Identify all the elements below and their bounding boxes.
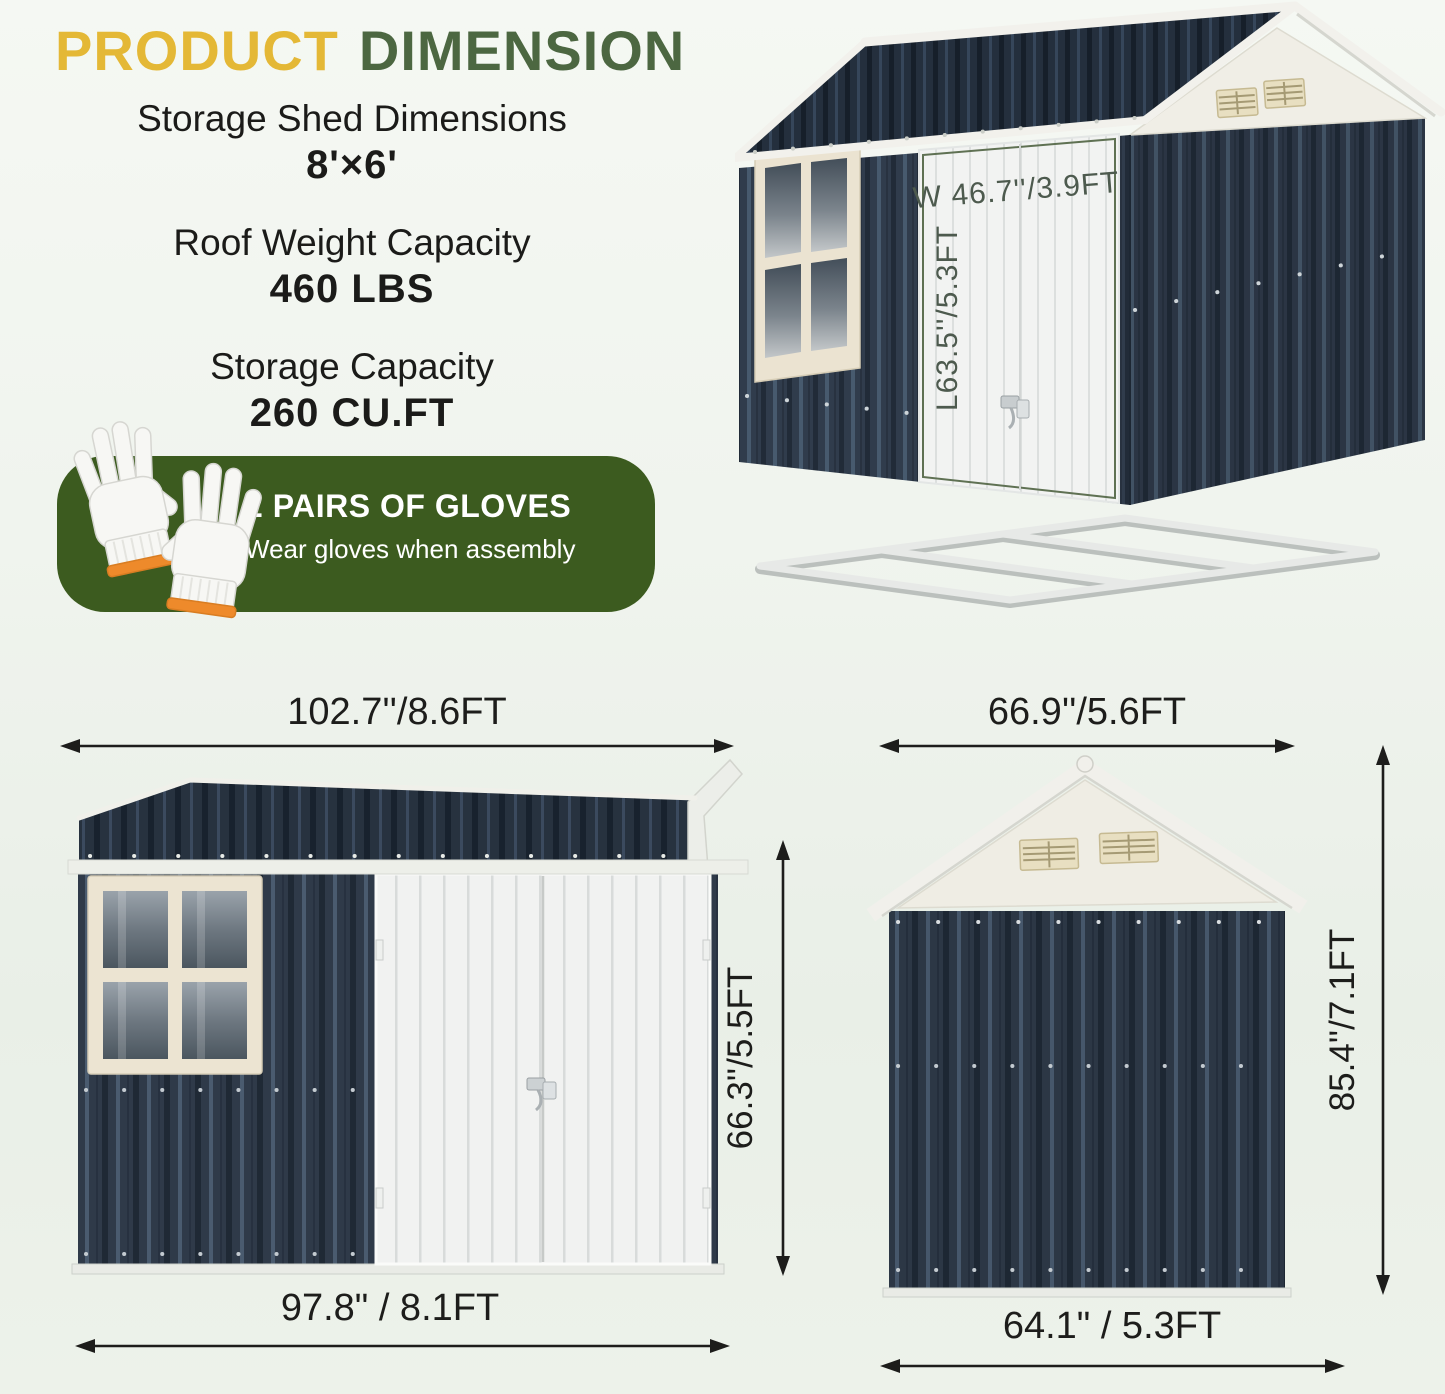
spec-item-dimensions: Storage Shed Dimensions 8'×6' bbox=[55, 96, 649, 190]
side-width-dimension: 66.9''/5.6FT bbox=[879, 691, 1295, 753]
product-dimension-infographic: PRODUCT DIMENSION Storage Shed Dimension… bbox=[0, 0, 1445, 1394]
front-width-label: 102.7''/8.6FT bbox=[287, 691, 506, 733]
front-doors bbox=[376, 874, 710, 1264]
side-height-label: 85.4''/7.1FT bbox=[1323, 929, 1362, 1112]
side-base-dimension: 64.1" / 5.3FT bbox=[880, 1305, 1345, 1373]
side-elevation-view: 66.9''/5.6FT bbox=[850, 690, 1445, 1394]
front-height-label: 66.3''/5.5FT bbox=[721, 967, 760, 1150]
title-word-dimension: DIMENSION bbox=[359, 20, 685, 82]
front-roof bbox=[68, 760, 748, 874]
front-window bbox=[88, 876, 262, 1074]
spec-label: Storage Capacity bbox=[55, 344, 649, 389]
iso-door-height-label: L63.5''/5.3FT bbox=[931, 225, 964, 411]
side-base-label: 64.1" / 5.3FT bbox=[1003, 1305, 1221, 1347]
front-height-dimension: 66.3''/5.5FT bbox=[721, 840, 790, 1276]
base-frame bbox=[760, 518, 1375, 603]
iso-shed-view: W 46.7''/3.9FT L63.5''/5.3FT bbox=[735, 0, 1445, 645]
iso-window bbox=[755, 143, 860, 382]
side-wall bbox=[883, 911, 1291, 1297]
spec-label: Roof Weight Capacity bbox=[55, 220, 649, 265]
side-width-label: 66.9''/5.6FT bbox=[988, 691, 1186, 733]
front-base-label: 97.8" / 8.1FT bbox=[281, 1287, 499, 1329]
gloves-banner-subtitle: Wear gloves when assembly bbox=[245, 534, 637, 565]
side-height-dimension: 85.4''/7.1FT bbox=[1323, 745, 1390, 1295]
spec-value: 460 LBS bbox=[55, 265, 649, 314]
roof-peak-cap bbox=[1077, 756, 1093, 772]
spec-item-roof-capacity: Roof Weight Capacity 460 LBS bbox=[55, 220, 649, 314]
front-width-dimension: 102.7''/8.6FT bbox=[60, 691, 734, 753]
front-elevation-view: 102.7''/8.6FT bbox=[40, 690, 820, 1394]
gloves-icon bbox=[56, 402, 288, 644]
iso-door: W 46.7''/3.9FT L63.5''/5.3FT bbox=[912, 134, 1121, 503]
front-base-dimension: 97.8" / 8.1FT bbox=[75, 1287, 730, 1353]
page-title: PRODUCT DIMENSION bbox=[55, 20, 685, 82]
title-word-product: PRODUCT bbox=[55, 20, 339, 82]
gloves-banner-title: 2 PAIRS OF GLOVES bbox=[245, 488, 637, 525]
side-roof bbox=[877, 756, 1297, 916]
spec-value: 8'×6' bbox=[55, 141, 649, 190]
spec-label: Storage Shed Dimensions bbox=[55, 96, 649, 141]
